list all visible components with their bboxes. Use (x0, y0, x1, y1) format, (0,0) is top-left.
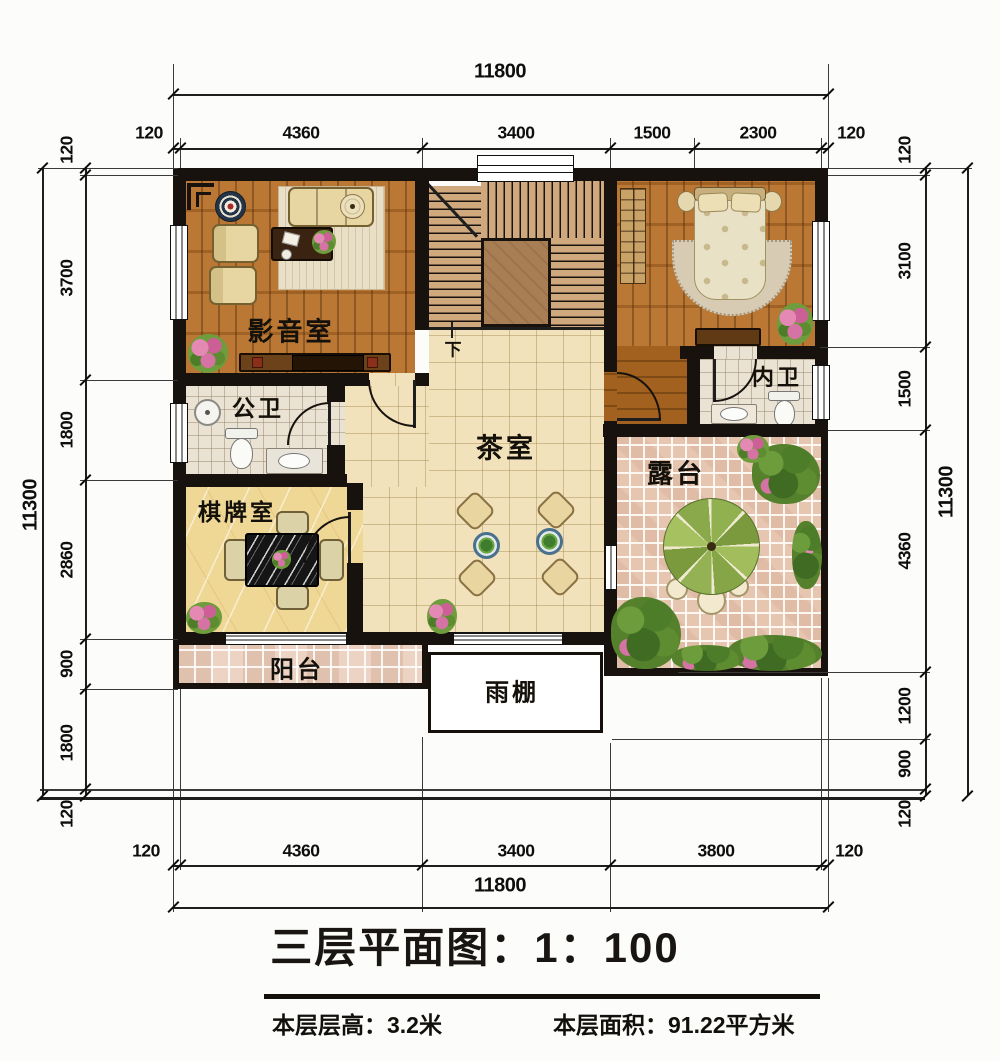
balcony-slider (225, 633, 347, 645)
armchair-2 (209, 266, 257, 305)
dim-chain (173, 148, 828, 150)
plant-terrace-bottom (672, 645, 744, 671)
stair-flight-top (481, 181, 604, 238)
balcony-parapet-right (422, 645, 428, 689)
footer-divider (264, 994, 820, 999)
dim-top-1: 4360 (283, 123, 320, 144)
stair-bottom-edge (429, 327, 604, 330)
door-opening (604, 372, 617, 421)
dim-left-5: 1800 (57, 725, 78, 762)
tea-room-slider (453, 633, 563, 645)
dim-chain (173, 865, 828, 867)
dim-right-2: 1500 (895, 371, 916, 408)
tv-screen (292, 355, 364, 371)
plant-terrace-corner (611, 597, 681, 669)
dim-left-2: 1800 (57, 412, 78, 449)
wall (680, 346, 714, 359)
dim-top-overall: 11800 (474, 61, 526, 84)
terrace-slider (605, 545, 617, 590)
dim-left-0: 120 (57, 136, 78, 164)
pillow-right (731, 192, 762, 213)
dim-top-2: 3400 (498, 123, 535, 144)
plant-terrace-bottomright (728, 635, 822, 671)
tea-room-floor (429, 327, 604, 632)
sink-basin-ensuite (720, 407, 748, 421)
dim-right-1: 3100 (895, 243, 916, 280)
ground-line (40, 797, 925, 800)
label-media-room: 影音室 (247, 312, 334, 349)
stair-flight-left (429, 186, 481, 327)
label-terrace: 露台 (647, 454, 705, 491)
plant-terrace-right (792, 521, 822, 589)
public-bath-window (170, 403, 188, 463)
bedroom-tv-cabinet (695, 328, 761, 346)
dim-chain (173, 907, 828, 909)
dim-left-1: 3700 (57, 260, 78, 297)
dim-right-4: 1200 (895, 688, 916, 725)
label-public-bath: 公卫 (232, 389, 284, 423)
wall (347, 483, 363, 510)
dim-bottom-overall: 11800 (474, 875, 526, 898)
ext-line (828, 175, 930, 176)
wall (757, 346, 828, 359)
ext-line (610, 138, 611, 168)
dim-bottom-2: 3400 (498, 841, 535, 862)
label-ensuite-bath: 内卫 (752, 360, 802, 392)
dim-right-6: 120 (895, 800, 916, 828)
ext-line (612, 739, 930, 740)
bed-blanket (694, 200, 766, 300)
dim-top-5: 120 (837, 123, 865, 144)
corner-window-icon-inner (196, 192, 211, 207)
side-table-round-light (340, 194, 365, 219)
door-opening (714, 346, 757, 359)
ext-line (80, 175, 178, 176)
coffee-table-cup (281, 249, 292, 260)
hallway-floor-2 (363, 487, 429, 632)
dim-left-3: 2860 (57, 542, 78, 579)
ext-line (173, 689, 174, 912)
armchair-1 (212, 224, 259, 263)
wall (415, 168, 429, 330)
ext-line (678, 672, 930, 673)
ext-line (80, 689, 178, 690)
dim-chain (925, 168, 927, 796)
wall (173, 474, 347, 487)
tea-table-2 (536, 528, 563, 555)
wall (327, 445, 345, 476)
ext-line (80, 639, 178, 640)
floor-height-note: 本层层高：3.2米 (272, 1006, 442, 1040)
stair-landing (481, 238, 551, 327)
ext-line (828, 430, 930, 431)
dim-right-0: 120 (895, 136, 916, 164)
stair-window (477, 155, 574, 182)
label-stair-down: 下 (445, 336, 462, 361)
sink-basin-public (278, 453, 310, 469)
label-tea-room: 茶室 (476, 427, 536, 466)
ext-line (610, 743, 611, 912)
floor-plan: 影音室 公卫 棋牌室 茶室 内卫 露台 阳台 雨棚 下 11800 120 43… (0, 0, 1000, 1061)
ext-line (180, 138, 181, 168)
dim-left-4: 900 (57, 650, 78, 678)
parasol-pole (707, 542, 716, 551)
chess-chair-bottom (276, 585, 309, 610)
dim-right-overall: 11300 (936, 466, 959, 518)
ext-line (828, 678, 829, 912)
dim-right-3: 4360 (895, 533, 916, 570)
ext-line (422, 737, 423, 912)
speaker-left (252, 357, 263, 368)
dim-top-4: 2300 (740, 123, 777, 144)
toilet-bowl-ensuite (774, 400, 795, 427)
pillow-left (698, 192, 729, 213)
ext-line (38, 168, 178, 169)
ext-line (40, 789, 925, 791)
wall (327, 380, 345, 402)
dim-left-overall: 11300 (20, 479, 43, 531)
ext-line (180, 689, 181, 870)
tea-table-1 (473, 532, 500, 559)
dim-top-3: 1500 (634, 123, 671, 144)
dim-bottom-3: 3800 (698, 841, 735, 862)
dim-bottom-0: 120 (132, 841, 160, 862)
wardrobe (620, 188, 646, 284)
wall (687, 359, 700, 424)
label-rain-canopy: 雨棚 (485, 673, 539, 708)
label-balcony: 阳台 (270, 650, 324, 685)
dim-bottom-4: 120 (835, 841, 863, 862)
ensuite-window (812, 365, 830, 420)
label-chess-room: 棋牌室 (198, 493, 276, 527)
ext-line (694, 138, 695, 168)
ext-line (821, 678, 822, 870)
media-room-window (170, 225, 188, 320)
wall (604, 168, 617, 372)
ext-line (828, 64, 829, 168)
ext-line (422, 138, 423, 168)
dim-left-6: 120 (57, 800, 78, 828)
stair-flight-right (551, 238, 604, 327)
side-table-round-dark (215, 191, 246, 222)
ext-line (828, 168, 972, 169)
ext-line (820, 347, 930, 348)
bedroom-window (812, 221, 830, 321)
dim-top-0: 120 (135, 123, 163, 144)
speaker-right (367, 357, 378, 368)
ext-line (80, 380, 178, 381)
wall (347, 563, 363, 645)
wall (603, 424, 828, 437)
dim-chain (173, 94, 828, 96)
dim-chain (85, 168, 87, 796)
dim-bottom-1: 4360 (283, 841, 320, 862)
shower-drain-center (205, 410, 210, 415)
floor-area-note: 本层面积：91.22平方米 (553, 1006, 795, 1040)
chess-chair-top (276, 511, 309, 535)
ext-line (80, 480, 178, 481)
drawing-title: 三层平面图：1：100 (230, 914, 720, 975)
dim-right-5: 900 (895, 750, 916, 778)
toilet-bowl-public (230, 438, 253, 469)
dim-chain (967, 168, 969, 796)
terrace-parapet-right (821, 437, 828, 676)
wall (415, 373, 429, 386)
